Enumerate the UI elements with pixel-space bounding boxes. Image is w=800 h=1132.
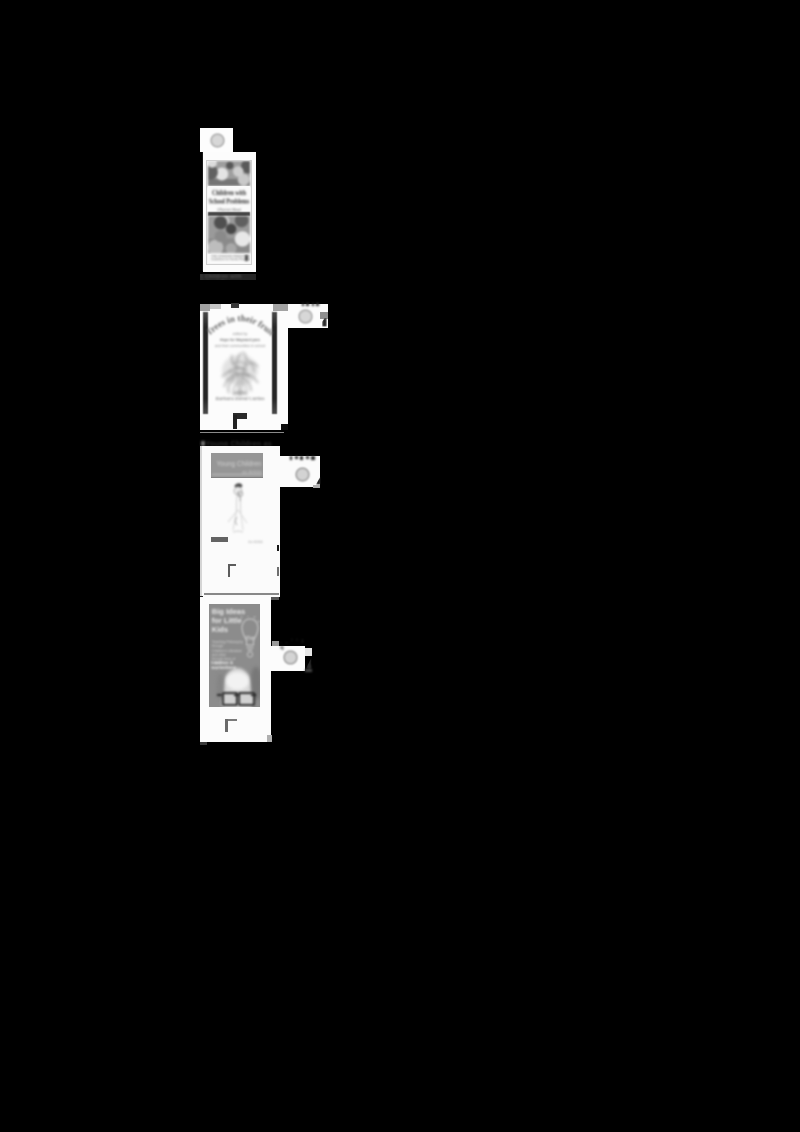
- svg-text:Children with: Children with: [212, 189, 246, 197]
- svg-text:School Problems: School Problems: [209, 197, 250, 205]
- svg-text:Young Children: Young Children: [216, 459, 261, 468]
- svg-text:A Physician's Manual: A Physician's Manual: [216, 207, 241, 212]
- svg-text:the: the: [245, 635, 254, 642]
